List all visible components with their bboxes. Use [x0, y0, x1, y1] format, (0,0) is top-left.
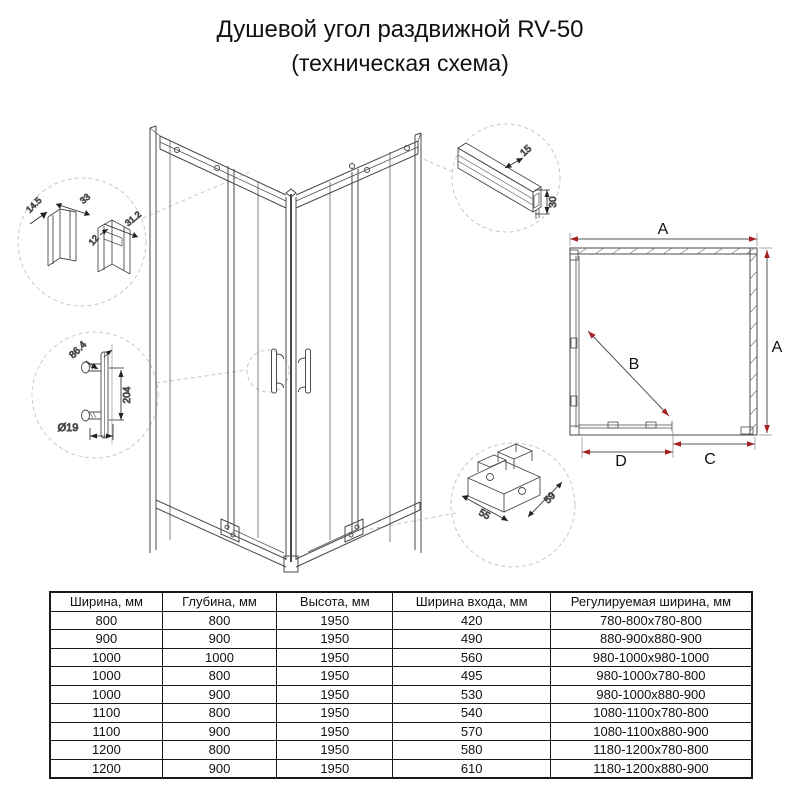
roller-detail: 55 59 — [462, 444, 562, 522]
handle-dim-86-4: 86.4 — [67, 339, 89, 361]
spec-table-body: 8008001950420780-800x780-800900900195049… — [50, 611, 752, 778]
plan-label-a-top: A — [658, 221, 669, 238]
top-rail-detail: 15 30 — [458, 143, 559, 219]
plan-label-a-right: A — [772, 339, 783, 356]
table-row: 120080019505801180-1200x780-800 — [50, 741, 752, 760]
table-cell: 900 — [162, 759, 276, 778]
main-isometric-drawing — [150, 126, 421, 572]
table-cell: 1950 — [277, 667, 393, 686]
table-cell: 540 — [393, 704, 550, 723]
table-cell: 1200 — [50, 741, 162, 760]
profile-dim-12: 12 — [87, 233, 101, 247]
glass-wall-hatching — [578, 248, 757, 431]
table-cell: 1100 — [50, 704, 162, 723]
table-header-cell: Глубина, мм — [162, 592, 276, 611]
profile-dim-14-5: 14.5 — [24, 195, 43, 214]
table-cell: 490 — [393, 630, 550, 649]
table-cell: 900 — [162, 722, 276, 741]
table-header-cell: Ширина входа, мм — [393, 592, 550, 611]
table-row: 120090019506101180-1200x880-900 — [50, 759, 752, 778]
table-cell: 580 — [393, 741, 550, 760]
table-row: 110080019505401080-1100x780-800 — [50, 704, 752, 723]
profile-dim-33: 33 — [78, 192, 92, 206]
table-cell: 1180-1200x880-900 — [550, 759, 752, 778]
dimension-arrowheads — [570, 236, 770, 455]
table-cell: 1950 — [277, 648, 393, 667]
handle-callout-circle — [32, 332, 158, 458]
table-cell: 1950 — [277, 759, 393, 778]
table-cell: 570 — [393, 722, 550, 741]
table-cell: 1200 — [50, 759, 162, 778]
table-cell: 495 — [393, 667, 550, 686]
rail-dim-30: 30 — [548, 196, 559, 208]
table-row: 10008001950495980-1000x780-800 — [50, 667, 752, 686]
table-row: 9009001950490880-900x880-900 — [50, 630, 752, 649]
table-cell: 1000 — [50, 667, 162, 686]
table-cell: 980-1000x780-800 — [550, 667, 752, 686]
table-header-row: Ширина, ммГлубина, ммВысота, ммШирина вх… — [50, 592, 752, 611]
screw-hole-icon — [350, 164, 355, 169]
table-cell: 980-1000x980-1000 — [550, 648, 752, 667]
table-cell: 1000 — [50, 685, 162, 704]
table-cell: 1100 — [50, 722, 162, 741]
table-cell: 1950 — [277, 722, 393, 741]
roller-callout-circle — [451, 443, 575, 567]
table-cell: 900 — [50, 630, 162, 649]
table-cell: 800 — [162, 704, 276, 723]
table-cell: 530 — [393, 685, 550, 704]
plan-view: A A B D C — [570, 221, 783, 470]
table-row: 10009001950530980-1000x880-900 — [50, 685, 752, 704]
table-row: 8008001950420780-800x780-800 — [50, 611, 752, 630]
table-cell: 420 — [393, 611, 550, 630]
wall-profile-detail: 14.5 33 12 31.2 — [24, 192, 143, 274]
table-header-cell: Регулируемая ширина, мм — [550, 592, 752, 611]
plan-label-c: C — [704, 451, 716, 468]
table-cell: 980-1000x880-900 — [550, 685, 752, 704]
table-row: 100010001950560980-1000x980-1000 — [50, 648, 752, 667]
roller-dim-59: 59 — [542, 490, 558, 506]
spec-table: Ширина, ммГлубина, ммВысота, ммШирина вх… — [49, 591, 753, 779]
plan-dim-line-b-diagonal — [588, 331, 669, 416]
handle-detail: 204 86.4 Ø19 — [58, 339, 133, 444]
table-cell: 1950 — [277, 630, 393, 649]
table-cell: 800 — [162, 611, 276, 630]
table-cell: 800 — [162, 741, 276, 760]
table-header-cell: Ширина, мм — [50, 592, 162, 611]
table-cell: 1950 — [277, 611, 393, 630]
rail-dim-15: 15 — [519, 143, 535, 159]
plan-label-d: D — [615, 453, 627, 470]
table-cell: 610 — [393, 759, 550, 778]
table-cell: 1950 — [277, 704, 393, 723]
handle-dim-204: 204 — [122, 386, 133, 403]
top-rail-callout-circle — [452, 124, 560, 232]
table-cell: 900 — [162, 685, 276, 704]
handle-dim-diameter-19: Ø19 — [58, 422, 79, 434]
table-cell: 1950 — [277, 685, 393, 704]
table-cell: 1080-1100x780-800 — [550, 704, 752, 723]
table-row: 110090019505701080-1100x880-900 — [50, 722, 752, 741]
table-header-cell: Высота, мм — [277, 592, 393, 611]
profile-dim-31-2: 31.2 — [123, 209, 143, 228]
plan-label-b: B — [629, 356, 640, 373]
door-handle — [299, 349, 311, 393]
table-cell: 560 — [393, 648, 550, 667]
table-cell: 1000 — [50, 648, 162, 667]
table-cell: 800 — [162, 667, 276, 686]
table-cell: 880-900x880-900 — [550, 630, 752, 649]
technical-scheme-page: Душевой угол раздвижной RV-50 (техническ… — [0, 0, 800, 800]
table-cell: 1000 — [162, 648, 276, 667]
leader-line — [421, 158, 453, 172]
table-cell: 1080-1100x880-900 — [550, 722, 752, 741]
table-cell: 1180-1200x780-800 — [550, 741, 752, 760]
table-cell: 1950 — [277, 741, 393, 760]
table-cell: 800 — [50, 611, 162, 630]
table-cell: 780-800x780-800 — [550, 611, 752, 630]
roller-dim-55: 55 — [477, 507, 492, 522]
table-cell: 900 — [162, 630, 276, 649]
leader-line — [366, 513, 456, 530]
